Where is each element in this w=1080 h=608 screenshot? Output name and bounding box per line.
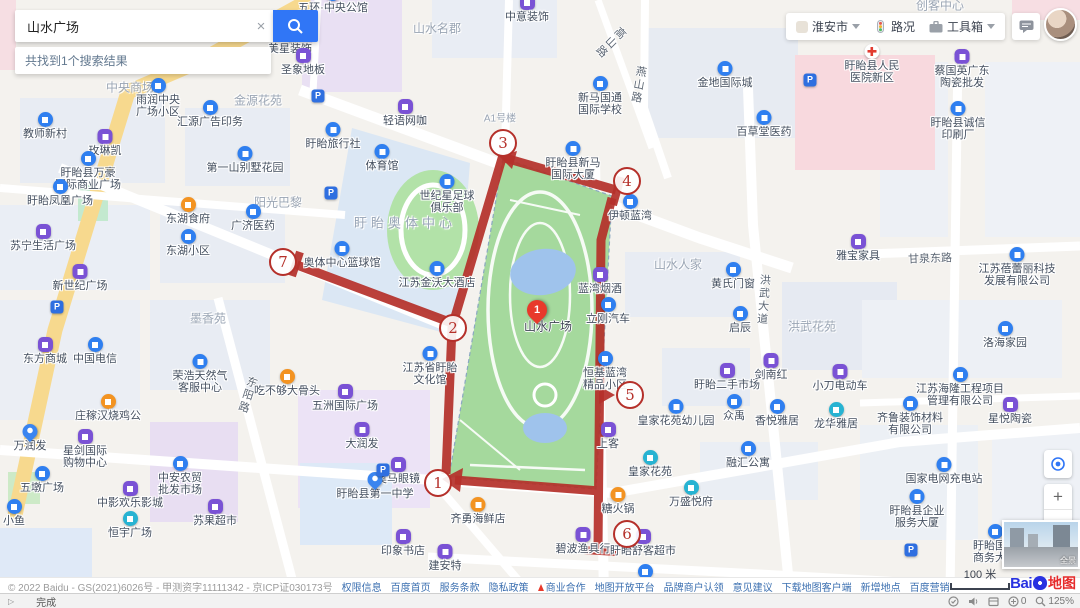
map-poi[interactable]: 立刚汽车 bbox=[586, 297, 630, 325]
map-poi[interactable]: 香悦雅居 bbox=[755, 399, 799, 427]
poi-icon bbox=[684, 480, 699, 495]
poi-label: 盱眙二手市场 bbox=[694, 379, 760, 391]
poi-icon bbox=[280, 369, 295, 384]
map-poi[interactable]: 中影欢乐影城 bbox=[97, 481, 163, 509]
poi-label: 国家电网充电站 bbox=[906, 473, 983, 485]
poi-label: 世纪星足球俱乐部 bbox=[420, 190, 475, 214]
status-text: 完成 bbox=[36, 594, 56, 608]
poi-icon bbox=[123, 481, 138, 496]
map-poi[interactable]: 恒宇广场 bbox=[108, 511, 152, 539]
magnifier-icon bbox=[1035, 596, 1046, 607]
results-count-text: 共找到1个搜索结果 bbox=[25, 52, 128, 69]
poi-label: 碧波渔具行 bbox=[556, 543, 611, 555]
poi-label: 新世纪广场 bbox=[53, 280, 108, 292]
poi-label: 轻语网咖 bbox=[383, 115, 427, 127]
poi-icon bbox=[38, 337, 53, 352]
poi-label: 蓝湾烟酒 bbox=[578, 283, 622, 295]
map-poi[interactable]: 新马国通国际学校 bbox=[578, 76, 622, 116]
map-poi[interactable]: 雅宝家具 bbox=[836, 234, 880, 262]
map-scale: 100 米 bbox=[950, 566, 1010, 590]
poi-label: 启辰 bbox=[729, 322, 751, 334]
baidu-paw-icon bbox=[1033, 576, 1047, 590]
search-button[interactable] bbox=[273, 10, 318, 42]
browser-zoom[interactable]: 125% bbox=[1035, 596, 1074, 607]
map-poi[interactable]: 剑南红 bbox=[755, 353, 788, 381]
poi-label: 五墩广场 bbox=[20, 482, 64, 494]
poi-icon bbox=[471, 497, 486, 512]
poi-label: 第一山别墅花园 bbox=[207, 162, 284, 174]
poi-icon bbox=[833, 364, 848, 379]
map-poi[interactable]: 苏果超市 bbox=[193, 499, 237, 527]
poi-icon bbox=[325, 0, 340, 1]
browser-window: 山水名郡创客中心中央商场金源花苑阳光巴黎墨香苑山水人家洪武花苑盱眙奥体中心A1号… bbox=[0, 0, 1080, 608]
logo-bai-text: Bai bbox=[1010, 575, 1032, 592]
poi-icon bbox=[88, 337, 103, 352]
poi-label: 百草堂医药 bbox=[737, 126, 792, 138]
chat-icon bbox=[1019, 20, 1034, 33]
poi-label: 伊顿蓝湾 bbox=[608, 210, 652, 222]
poi-label: 中安农贸批发市场 bbox=[158, 472, 202, 496]
poi-icon bbox=[53, 179, 68, 194]
poi-icon bbox=[669, 399, 684, 414]
poi-icon bbox=[910, 489, 925, 504]
scale-bar bbox=[950, 583, 1010, 590]
map-poi[interactable]: 金地国际城 bbox=[698, 61, 753, 89]
poi-label: 剑南红 bbox=[755, 369, 788, 381]
panorama-thumbnail[interactable]: 全景 bbox=[1002, 520, 1080, 569]
map-poi[interactable]: 齐勇海鲜店 bbox=[451, 497, 506, 525]
map-poi[interactable]: 大润发 bbox=[346, 422, 379, 450]
poi-label: 中国电信 bbox=[73, 353, 117, 365]
footer-link[interactable]: 服务条款 bbox=[440, 583, 480, 594]
searched-place-label: 山水广场 bbox=[524, 318, 572, 335]
speaker-icon bbox=[968, 596, 979, 607]
poi-icon bbox=[208, 499, 223, 514]
parking-icon[interactable]: P bbox=[51, 301, 64, 314]
map-poi[interactable]: 苏宁生活广场 bbox=[10, 224, 76, 252]
map-poi[interactable]: 中安农贸批发市场 bbox=[158, 456, 202, 496]
poi-label: 盱眙旅行社 bbox=[306, 138, 361, 150]
poi-icon bbox=[123, 511, 138, 526]
download-box-icon bbox=[988, 596, 999, 607]
blocked-count: 0 bbox=[1008, 596, 1027, 607]
poi-icon bbox=[720, 363, 735, 378]
map-poi[interactable]: 汇源广告印务 bbox=[177, 100, 243, 128]
poi-label: 教师新村 bbox=[23, 128, 67, 140]
map-poi[interactable]: 融汇公寓 bbox=[726, 441, 770, 469]
pin-poi-icon bbox=[19, 421, 40, 442]
circle-plus-icon bbox=[1008, 596, 1019, 607]
poi-label: 盱眙县诚信印刷厂 bbox=[931, 117, 986, 141]
browser-zoom-value: 125% bbox=[1048, 596, 1074, 607]
map-poi[interactable]: 吃不够大骨头 bbox=[254, 369, 320, 397]
poi-icon bbox=[829, 402, 844, 417]
poi-icon bbox=[335, 241, 350, 256]
shield-check-icon bbox=[948, 596, 959, 607]
footer-link[interactable]: 新增地点 bbox=[861, 583, 901, 594]
map-poi[interactable]: 星悦陶瓷 bbox=[988, 397, 1032, 425]
baidu-map-logo[interactable]: Bai 地图 bbox=[1010, 573, 1076, 593]
poi-label: 大润发 bbox=[346, 438, 379, 450]
map-poi[interactable]: 国家电网充电站 bbox=[906, 457, 983, 485]
footer-link[interactable]: 意见建议 bbox=[733, 583, 773, 594]
toolbox-icon bbox=[929, 21, 943, 33]
poi-label: 苏果超市 bbox=[193, 515, 237, 527]
poi-icon bbox=[851, 234, 866, 249]
route-marker: 3 bbox=[489, 129, 517, 157]
map-poi[interactable]: 皇家花苑 bbox=[628, 450, 672, 478]
poi-icon bbox=[246, 204, 261, 219]
map-poi[interactable]: 万盛悦府 bbox=[669, 480, 713, 508]
map-poi[interactable]: 启辰 bbox=[729, 306, 751, 334]
status-bar: ▷ 完成 0 bbox=[0, 593, 1080, 608]
poi-icon bbox=[953, 367, 968, 382]
map-poi[interactable]: 东方商城 bbox=[23, 337, 67, 365]
poi-icon bbox=[391, 457, 406, 472]
copyright-bar: © 2022 Baidu - GS(2021)6026号 - 甲测资字11111… bbox=[0, 577, 1080, 594]
poi-icon bbox=[438, 544, 453, 559]
poi-label: 雨润中央广场小区 bbox=[136, 94, 180, 118]
map-poi[interactable]: 龙华雅居 bbox=[814, 402, 858, 430]
poi-icon bbox=[566, 141, 581, 156]
poi-icon bbox=[81, 151, 96, 166]
search-box[interactable]: × bbox=[15, 10, 273, 42]
map-poi[interactable]: 中意装饰 bbox=[505, 0, 549, 23]
map-poi[interactable]: 五墩广场 bbox=[20, 466, 64, 494]
map-poi[interactable]: 江苏金沃大酒店 bbox=[399, 261, 476, 289]
footer-links: 权限信息百度首页服务条款隐私政策商业合作地图开放平台品牌商户认领意见建议下载地图… bbox=[333, 579, 950, 594]
chevron-down-icon bbox=[852, 24, 860, 29]
poi-label: 东方商城 bbox=[23, 353, 67, 365]
poi-icon bbox=[101, 394, 116, 409]
poi-label: 体育馆 bbox=[366, 160, 399, 172]
toolbox-menu[interactable]: 工具箱 bbox=[929, 18, 995, 35]
poi-icon bbox=[718, 61, 733, 76]
poi-label: 星剑国际购物中心 bbox=[63, 445, 107, 469]
poi-icon bbox=[151, 78, 166, 93]
poi-label: 星悦陶瓷 bbox=[988, 413, 1032, 425]
traffic-light-icon bbox=[874, 20, 887, 33]
map-canvas[interactable]: 山水名郡创客中心中央商场金源花苑阳光巴黎墨香苑山水人家洪武花苑盱眙奥体中心A1号… bbox=[0, 0, 1080, 594]
poi-label: 皇家花苑幼儿园 bbox=[638, 415, 715, 427]
poi-icon bbox=[1003, 397, 1018, 412]
pin-number: 1 bbox=[527, 300, 547, 320]
poi-label: 中影欢乐影城 bbox=[97, 497, 163, 509]
map-poi[interactable]: 蔡国英广东陶瓷批发 bbox=[935, 49, 990, 89]
status-icons: 0 125% bbox=[948, 596, 1074, 607]
map-poi[interactable]: 雨润中央广场小区 bbox=[136, 78, 180, 118]
poi-icon bbox=[903, 396, 918, 411]
poi-label: 万盛悦府 bbox=[669, 496, 713, 508]
map-toolbar: 淮安市 路况 工具箱 bbox=[786, 13, 1005, 40]
poi-label: 盱眙凤凰广场 bbox=[27, 195, 93, 207]
poi-icon bbox=[181, 229, 196, 244]
map-poi[interactable]: 荣浩天然气客服中心 bbox=[173, 354, 228, 394]
parking-icon[interactable]: P bbox=[312, 90, 325, 103]
poi-label: 印象书店 bbox=[381, 545, 425, 557]
map-poi[interactable]: 广济医药 bbox=[231, 204, 275, 232]
poi-icon bbox=[988, 524, 1003, 539]
search-results-panel[interactable]: 共找到1个搜索结果 bbox=[15, 47, 271, 74]
map-poi[interactable]: 黄氏门窗 bbox=[711, 262, 755, 290]
footer-link[interactable]: 品牌商户认领 bbox=[664, 583, 724, 594]
blocked-count-value: 0 bbox=[1021, 596, 1027, 607]
poi-label: 雅宝家具 bbox=[836, 250, 880, 262]
copyright-text: © 2022 Baidu - GS(2021)6026号 - 甲测资字11111… bbox=[8, 579, 333, 594]
traffic-toggle[interactable]: 路况 bbox=[874, 18, 915, 35]
parking-icon[interactable]: P bbox=[325, 187, 338, 200]
user-avatar[interactable] bbox=[1044, 8, 1077, 41]
map-poi[interactable]: 新世纪广场 bbox=[53, 264, 108, 292]
poi-icon bbox=[35, 466, 50, 481]
poi-icon bbox=[296, 48, 311, 63]
map-poi[interactable]: 东湖小区 bbox=[166, 229, 210, 257]
poi-label: 庄稼汉烧鸡公 bbox=[75, 410, 141, 422]
poi-icon bbox=[733, 306, 748, 321]
map-poi[interactable]: 皇家花苑幼儿园 bbox=[638, 399, 715, 427]
map-poi[interactable]: 洛海家园 bbox=[983, 321, 1027, 349]
map-poi[interactable]: 世纪星足球俱乐部 bbox=[420, 174, 475, 214]
map-poi[interactable]: 东湖食府 bbox=[166, 197, 210, 225]
poi-label: 东湖食府 bbox=[166, 213, 210, 225]
parking-icon[interactable]: P bbox=[905, 544, 918, 557]
search-result-pin[interactable]: 1 bbox=[523, 296, 551, 324]
locate-button[interactable] bbox=[1044, 450, 1072, 478]
map-poi[interactable]: 奥体中心篮球馆 bbox=[304, 241, 381, 269]
footer-link[interactable]: 商业合作 bbox=[538, 583, 586, 594]
poi-icon bbox=[36, 224, 51, 239]
map-poi[interactable]: 轻语网咖 bbox=[383, 99, 427, 127]
map-poi[interactable]: 庄稼汉烧鸡公 bbox=[75, 394, 141, 422]
poi-label: 小刀电动车 bbox=[813, 380, 868, 392]
poi-label: 龙华雅居 bbox=[814, 418, 858, 430]
poi-icon bbox=[7, 499, 22, 514]
poi-label: 齐鲁装饰材料有限公司 bbox=[877, 412, 943, 436]
map-poi[interactable]: 糖火锅 bbox=[602, 487, 635, 515]
poi-label: 江苏蓓蕾丽科技发展有限公司 bbox=[979, 263, 1056, 287]
poi-label: 糖火锅 bbox=[602, 503, 635, 515]
poi-icon bbox=[623, 194, 638, 209]
map-poi[interactable]: 盱眙县人民医院新区 bbox=[845, 44, 900, 84]
pano-label: 全景 bbox=[1060, 555, 1076, 566]
poi-icon bbox=[727, 394, 742, 409]
poi-icon bbox=[520, 0, 535, 10]
poi-icon bbox=[741, 441, 756, 456]
chevron-down-icon bbox=[987, 24, 995, 29]
poi-icon bbox=[73, 264, 88, 279]
poi-label: 荣浩天然气客服中心 bbox=[173, 370, 228, 394]
city-icon bbox=[796, 21, 808, 33]
poi-icon bbox=[1010, 247, 1025, 262]
poi-label: 中意装饰 bbox=[505, 11, 549, 23]
map-poi[interactable]: 伊顿蓝湾 bbox=[608, 194, 652, 222]
poi-label: 皇家花苑 bbox=[628, 466, 672, 478]
map-poi[interactable]: 星剑国际购物中心 bbox=[63, 429, 107, 469]
poi-icon bbox=[951, 101, 966, 116]
map-poi[interactable]: 蓝湾烟酒 bbox=[578, 267, 622, 295]
footer-link[interactable]: 地图开放平台 bbox=[595, 583, 655, 594]
map-poi[interactable]: 五洲国际广场 bbox=[312, 384, 378, 412]
map-poi[interactable]: 盱眙县新马国际大厦 bbox=[546, 141, 601, 181]
status-page-icon: ▷ bbox=[8, 597, 14, 606]
poi-label: 吃不够大骨头 bbox=[254, 385, 320, 397]
poi-icon bbox=[355, 422, 370, 437]
poi-label: 金地国际城 bbox=[698, 77, 753, 89]
poi-label: 小鱼 bbox=[3, 515, 25, 527]
map-poi[interactable]: 小鱼 bbox=[3, 499, 25, 527]
parking-icon[interactable]: P bbox=[804, 74, 817, 87]
poi-label: 江苏金沃大酒店 bbox=[399, 277, 476, 289]
map-poi[interactable]: 体育馆 bbox=[366, 144, 399, 172]
poi-label: 盱眙县人民医院新区 bbox=[845, 60, 900, 84]
footer-link[interactable]: 隐私政策 bbox=[489, 583, 529, 594]
poi-label: 香悦雅居 bbox=[755, 415, 799, 427]
poi-icon bbox=[770, 399, 785, 414]
feedback-button[interactable] bbox=[1012, 13, 1040, 40]
poi-label: 盱眙县新马国际大厦 bbox=[546, 157, 601, 181]
poi-label: 苏宁生活广场 bbox=[10, 240, 76, 252]
poi-label: 恒宇广场 bbox=[108, 527, 152, 539]
route-marker: 4 bbox=[613, 167, 641, 195]
map-poi[interactable]: 教师新村 bbox=[23, 112, 67, 140]
poi-icon bbox=[326, 122, 341, 137]
search-icon bbox=[287, 18, 304, 35]
map-poi[interactable]: 盱眙二手市场 bbox=[694, 363, 760, 391]
map-poi[interactable]: 小刀电动车 bbox=[813, 364, 868, 392]
poi-icon bbox=[601, 297, 616, 312]
poi-icon bbox=[440, 174, 455, 189]
poi-label: 黄氏门窗 bbox=[711, 278, 755, 290]
poi-icon bbox=[955, 49, 970, 64]
parking-icon[interactable]: P bbox=[377, 464, 390, 477]
map-poi[interactable]: 盱眙旅行社 bbox=[306, 122, 361, 150]
map-poi[interactable]: 中国电信 bbox=[73, 337, 117, 365]
poi-label: 奥体中心篮球馆 bbox=[304, 257, 381, 269]
footer-link[interactable]: 权限信息 bbox=[342, 583, 382, 594]
route-marker: 2 bbox=[439, 314, 467, 342]
search-input[interactable] bbox=[25, 18, 249, 35]
map-poi[interactable]: 众禹 bbox=[723, 394, 745, 422]
poi-label: 立刚汽车 bbox=[586, 313, 630, 325]
poi-icon bbox=[576, 527, 591, 542]
poi-icon bbox=[998, 321, 1013, 336]
poi-label: 齐勇海鲜店 bbox=[451, 513, 506, 525]
city-selector[interactable]: 淮安市 bbox=[796, 18, 860, 35]
poi-label: 建安特 bbox=[429, 560, 462, 572]
poi-icon bbox=[598, 351, 613, 366]
map-poi[interactable]: 建安特 bbox=[429, 544, 462, 572]
poi-icon bbox=[203, 100, 218, 115]
poi-icon bbox=[757, 110, 772, 125]
poi-icon bbox=[398, 99, 413, 114]
poi-icon bbox=[430, 261, 445, 276]
poi-icon bbox=[611, 487, 626, 502]
footer-link[interactable]: 百度营销 bbox=[910, 583, 950, 594]
map-poi[interactable]: 盱眙县企业服务大厦 bbox=[890, 489, 945, 529]
map-poi[interactable]: 盱眙凤凰广场 bbox=[27, 179, 93, 207]
route-marker: 6 bbox=[613, 520, 641, 548]
poi-icon bbox=[396, 529, 411, 544]
poi-icon bbox=[98, 129, 113, 144]
poi-icon bbox=[238, 146, 253, 161]
poi-label: 蔡国英广东陶瓷批发 bbox=[935, 65, 990, 89]
city-name: 淮安市 bbox=[812, 18, 848, 35]
map-poi[interactable]: 百草堂医药 bbox=[737, 110, 792, 138]
poi-label: 盱眙县企业服务大厦 bbox=[890, 505, 945, 529]
poi-icon bbox=[593, 76, 608, 91]
route-marker: 5 bbox=[616, 381, 644, 409]
toolbox-label: 工具箱 bbox=[947, 18, 983, 35]
poi-icon bbox=[643, 450, 658, 465]
poi-label: 众禹 bbox=[723, 410, 745, 422]
poi-icon bbox=[423, 346, 438, 361]
footer-link[interactable]: 下载地图客户端 bbox=[782, 583, 852, 594]
poi-icon bbox=[193, 354, 208, 369]
poi-label: 盱眙舒客超市 bbox=[610, 545, 676, 557]
poi-icon bbox=[181, 197, 196, 212]
poi-icon bbox=[601, 422, 616, 437]
map-poi[interactable]: 江苏省盱眙文化馆 bbox=[403, 346, 458, 386]
logo-ditu-text: 地图 bbox=[1048, 573, 1076, 593]
scale-label: 100 米 bbox=[964, 569, 996, 581]
poi-label: 五洲国际广场 bbox=[312, 400, 378, 412]
poi-label: 汇源广告印务 bbox=[177, 116, 243, 128]
map-poi[interactable]: 圣象地板 bbox=[281, 48, 325, 76]
poi-label: 新马国通国际学校 bbox=[578, 92, 622, 116]
map-poi[interactable]: 盱眙县第一中学 bbox=[337, 472, 414, 500]
map-poi[interactable]: 印象书店 bbox=[381, 529, 425, 557]
locate-target-icon bbox=[1050, 456, 1066, 472]
poi-icon bbox=[764, 353, 779, 368]
map-poi[interactable]: 第一山别墅花园 bbox=[207, 146, 284, 174]
poi-icon bbox=[937, 457, 952, 472]
poi-label: 上客 bbox=[597, 438, 619, 450]
footer-link[interactable]: 百度首页 bbox=[391, 583, 431, 594]
route-marker: 1 bbox=[424, 469, 452, 497]
poi-icon bbox=[78, 429, 93, 444]
map-poi[interactable]: 碧波渔具行 bbox=[556, 527, 611, 555]
hospital-poi-icon bbox=[865, 44, 880, 59]
poi-icon bbox=[593, 267, 608, 282]
poi-icon bbox=[338, 384, 353, 399]
search-clear-icon[interactable]: × bbox=[249, 18, 273, 35]
poi-icon bbox=[173, 456, 188, 471]
traffic-label: 路况 bbox=[891, 18, 915, 35]
poi-label: 圣象地板 bbox=[281, 64, 325, 76]
poi-label: 江苏省盱眙文化馆 bbox=[403, 362, 458, 386]
zoom-in-button[interactable]: + bbox=[1044, 484, 1072, 509]
poi-label: 洛海家园 bbox=[983, 337, 1027, 349]
poi-icon bbox=[375, 144, 390, 159]
map-poi[interactable]: 齐鲁装饰材料有限公司 bbox=[877, 396, 943, 436]
poi-icon bbox=[38, 112, 53, 127]
flame-icon bbox=[538, 584, 544, 591]
map-poi[interactable]: 万润发 bbox=[14, 424, 47, 452]
map-poi[interactable]: 盱眙县诚信印刷厂 bbox=[931, 101, 986, 141]
poi-icon bbox=[726, 262, 741, 277]
poi-label: 广济医药 bbox=[231, 220, 275, 232]
route-marker: 7 bbox=[269, 248, 297, 276]
poi-label: 融汇公寓 bbox=[726, 457, 770, 469]
map-poi[interactable]: 上客 bbox=[597, 422, 619, 450]
map-poi[interactable]: 江苏蓓蕾丽科技发展有限公司 bbox=[979, 247, 1056, 287]
poi-label: 东湖小区 bbox=[166, 245, 210, 257]
